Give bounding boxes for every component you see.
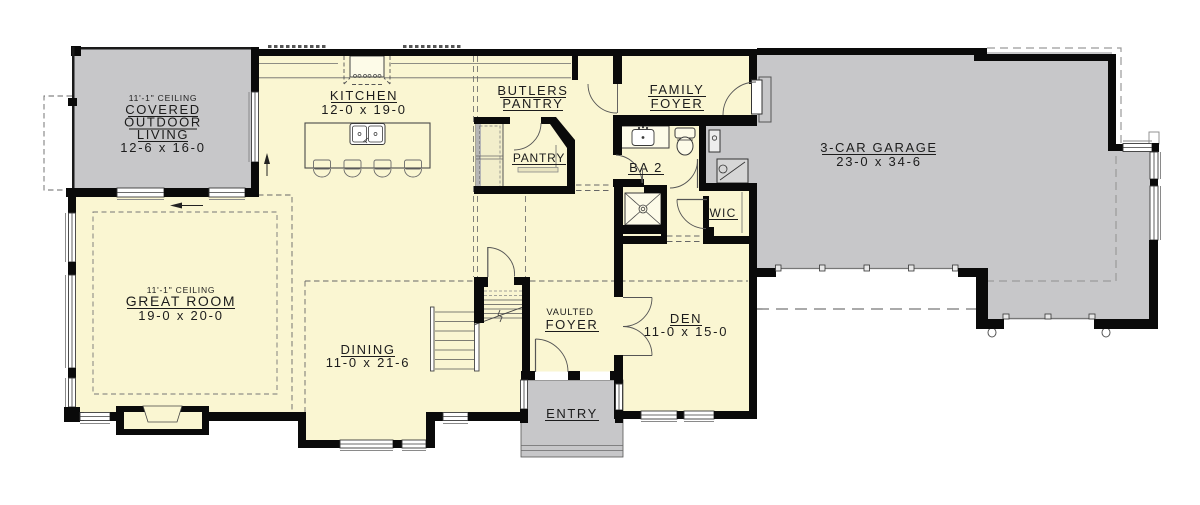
svg-text:GREAT ROOM: GREAT ROOM (126, 293, 236, 309)
svg-text:ENTRY: ENTRY (546, 406, 598, 421)
svg-text:12-6 x 16-0: 12-6 x 16-0 (120, 140, 206, 155)
svg-text:FOYER: FOYER (651, 96, 704, 111)
svg-text:3-CAR GARAGE: 3-CAR GARAGE (820, 140, 937, 155)
svg-text:11-0 x 21-6: 11-0 x 21-6 (326, 355, 411, 370)
svg-text:KITCHEN: KITCHEN (330, 88, 398, 103)
svg-text:11-0 x 15-0: 11-0 x 15-0 (644, 324, 729, 339)
svg-text:PANTRY: PANTRY (502, 96, 563, 111)
svg-text:23-0 x 34-6: 23-0 x 34-6 (836, 154, 922, 169)
svg-text:PANTRY: PANTRY (513, 151, 565, 165)
svg-text:FOYER: FOYER (546, 317, 599, 332)
svg-text:19-0 x 20-0: 19-0 x 20-0 (138, 308, 224, 323)
svg-text:FAMILY: FAMILY (650, 82, 705, 97)
svg-text:12-0 x 19-0: 12-0 x 19-0 (321, 102, 407, 117)
svg-text:BA 2: BA 2 (629, 160, 663, 175)
svg-text:WIC: WIC (710, 206, 737, 220)
